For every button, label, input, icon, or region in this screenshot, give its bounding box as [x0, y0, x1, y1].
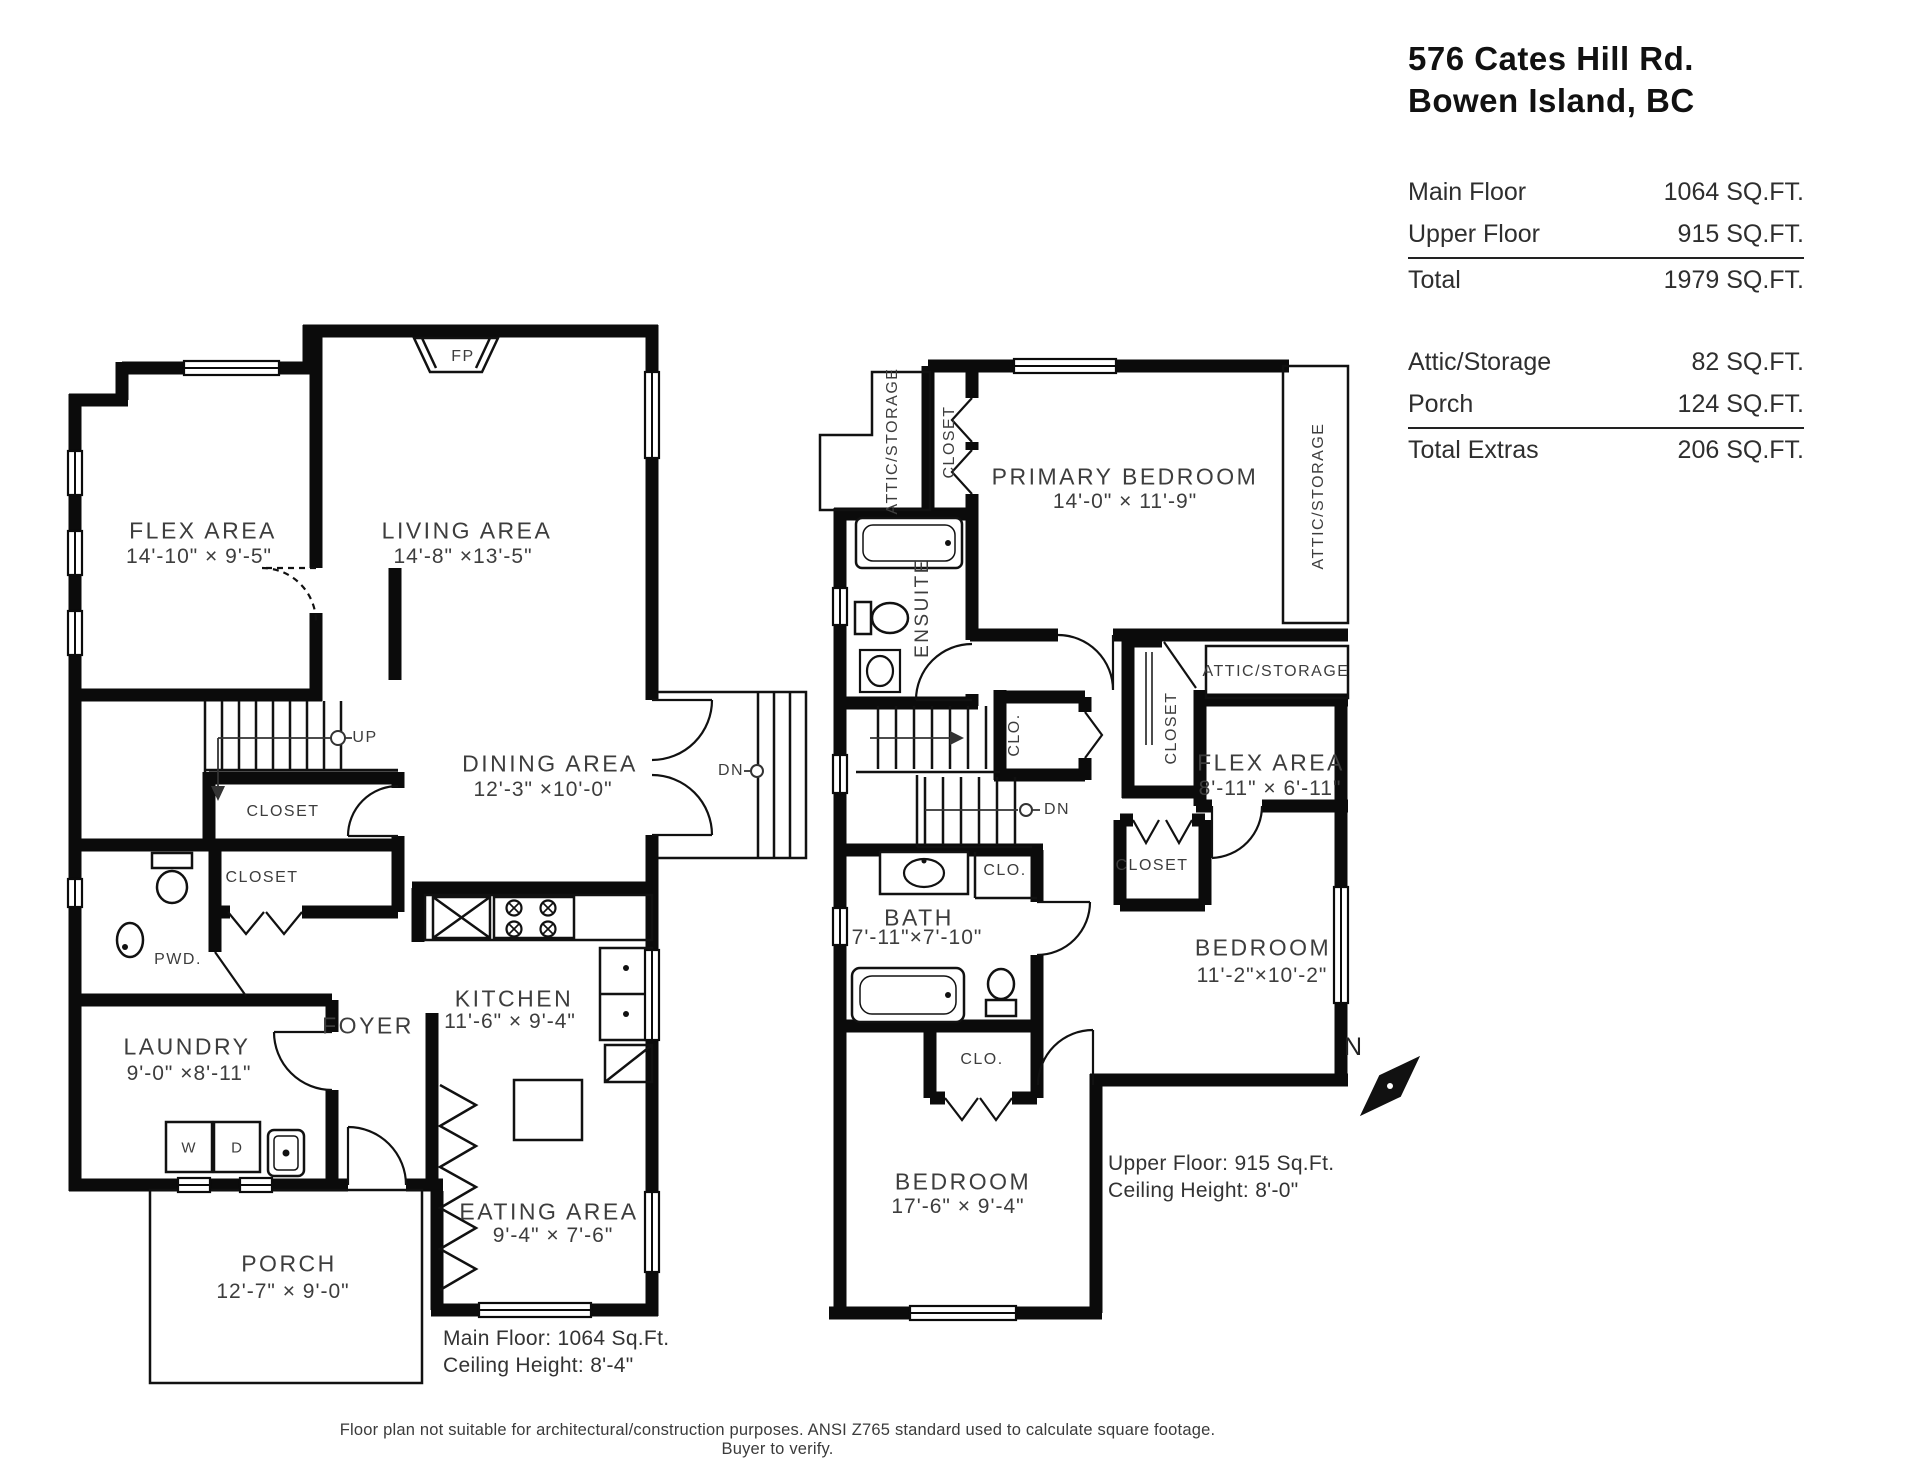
row-label: Attic/Storage	[1408, 348, 1551, 377]
north-label: N	[1344, 1033, 1363, 1062]
upper-flex-area-label: FLEX AREA	[1197, 750, 1345, 777]
closet-label: CLO.	[960, 1051, 1003, 1069]
closet-label: CLOSET	[941, 405, 959, 478]
bedroom-bottom-dims: 17'-6" × 9'-4"	[891, 1195, 1024, 1219]
closet-label: CLO.	[1006, 713, 1024, 756]
row-label: Total	[1408, 266, 1461, 295]
upper-floor-note-line2: Ceiling Height: 8'-0"	[1108, 1177, 1334, 1204]
dining-area-dims: 12'-3" ×10'-0"	[473, 778, 612, 802]
row-value: 206 SQ.FT.	[1678, 436, 1804, 465]
table-divider	[1408, 427, 1804, 429]
closet-label: CLO.	[983, 862, 1026, 880]
bedroom-right-dims: 11'-2"×10'-2"	[1197, 964, 1328, 988]
dining-area-label: DINING AREA	[462, 751, 638, 778]
closet-label: CLOSET	[225, 869, 298, 887]
steps-down-label: DN	[718, 762, 744, 780]
powder-room-label: PWD.	[154, 951, 202, 969]
table-row-total: Total 1979 SQ.FT.	[1408, 266, 1804, 295]
upper-floor-note: Upper Floor: 915 Sq.Ft. Ceiling Height: …	[1108, 1150, 1334, 1204]
table-row-upper-floor: Upper Floor 915 SQ.FT.	[1408, 220, 1804, 249]
attic-storage-label: ATTIC/STORAGE	[1310, 423, 1328, 570]
row-label: Main Floor	[1408, 178, 1526, 207]
porch-dims: 12'-7" × 9'-0"	[216, 1280, 349, 1304]
living-area-label: LIVING AREA	[382, 518, 553, 545]
fireplace-label: FP	[451, 348, 474, 366]
row-label: Total Extras	[1408, 436, 1539, 465]
attic-storage-label: ATTIC/STORAGE	[884, 368, 902, 515]
dryer-label: D	[231, 1140, 243, 1157]
table-row-total-extras: Total Extras 206 SQ.FT.	[1408, 436, 1804, 465]
closet-label: CLOSET	[1163, 691, 1181, 764]
stairs-down-label: DN	[1044, 801, 1070, 819]
bedroom-right-label: BEDROOM	[1195, 935, 1331, 962]
floor-plan-sheet: 576 Cates Hill Rd. Bowen Island, BC Main…	[0, 0, 1920, 1483]
laundry-label: LAUNDRY	[124, 1034, 251, 1061]
main-flex-area-dims: 14'-10" × 9'-5"	[126, 545, 272, 569]
table-row-attic-storage: Attic/Storage 82 SQ.FT.	[1408, 348, 1804, 377]
table-divider	[1408, 257, 1804, 259]
row-value: 1064 SQ.FT.	[1664, 178, 1804, 207]
compass-needle-icon	[1362, 1058, 1418, 1114]
laundry-dims: 9'-0" ×8'-11"	[127, 1062, 252, 1086]
row-value: 82 SQ.FT.	[1691, 348, 1804, 377]
ensuite-label: ENSUITE	[912, 558, 934, 658]
foyer-label: FOYER	[322, 1013, 414, 1040]
main-floor-note: Main Floor: 1064 Sq.Ft. Ceiling Height: …	[443, 1325, 669, 1379]
primary-bedroom-label: PRIMARY BEDROOM	[992, 464, 1259, 491]
upper-floor-note-line1: Upper Floor: 915 Sq.Ft.	[1108, 1150, 1334, 1177]
closet-label: CLOSET	[1115, 857, 1188, 875]
eating-area-dims: 9'-4" × 7'-6"	[493, 1224, 614, 1248]
eating-area-label: EATING AREA	[459, 1199, 638, 1226]
bedroom-bottom-label: BEDROOM	[895, 1169, 1031, 1196]
main-floor-plan	[68, 325, 806, 1383]
washer-label: W	[181, 1140, 196, 1157]
closet-label: CLOSET	[246, 803, 319, 821]
row-label: Upper Floor	[1408, 220, 1540, 249]
main-flex-area-label: FLEX AREA	[129, 518, 277, 545]
bath-dims: 7'-11"×7'-10"	[852, 926, 983, 950]
area-table: Main Floor 1064 SQ.FT. Upper Floor 915 S…	[1408, 0, 1804, 470]
living-area-dims: 14'-8" ×13'-5"	[393, 545, 532, 569]
row-value: 124 SQ.FT.	[1678, 390, 1804, 419]
main-floor-note-line2: Ceiling Height: 8'-4"	[443, 1352, 669, 1379]
table-row-main-floor: Main Floor 1064 SQ.FT.	[1408, 178, 1804, 207]
upper-flex-area-dims: 8'-11" × 6'-11"	[1199, 777, 1342, 801]
attic-storage-label: ATTIC/STORAGE	[1203, 663, 1350, 681]
porch-label: PORCH	[241, 1251, 337, 1278]
disclaimer-text: Floor plan not suitable for architectura…	[325, 1421, 1230, 1459]
row-value: 915 SQ.FT.	[1678, 220, 1804, 249]
stairs-up-label: UP	[352, 729, 377, 747]
table-row-porch: Porch 124 SQ.FT.	[1408, 390, 1804, 419]
row-label: Porch	[1408, 390, 1473, 419]
main-floor-note-line1: Main Floor: 1064 Sq.Ft.	[443, 1325, 669, 1352]
kitchen-label: KITCHEN	[455, 986, 573, 1013]
row-value: 1979 SQ.FT.	[1664, 266, 1804, 295]
kitchen-dims: 11'-6" × 9'-4"	[444, 1010, 576, 1034]
primary-bedroom-dims: 14'-0" × 11'-9"	[1053, 490, 1197, 514]
